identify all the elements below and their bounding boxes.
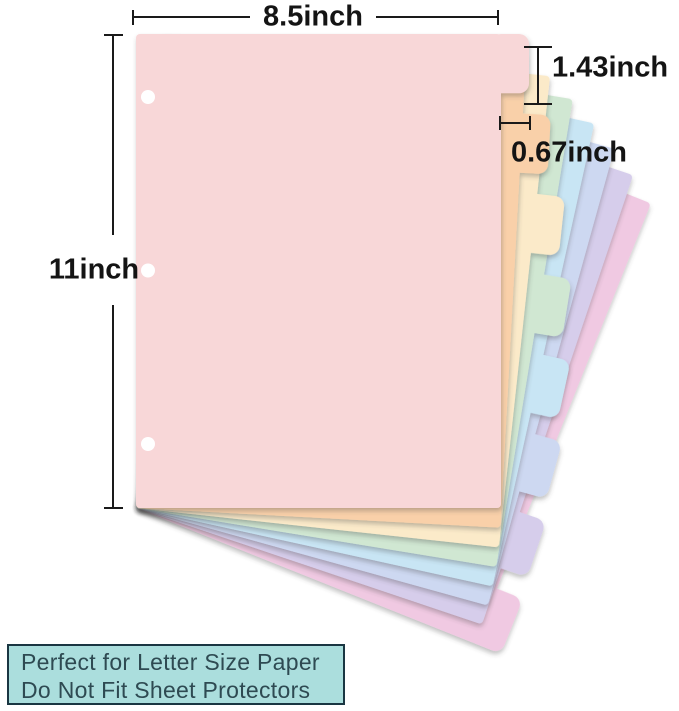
punch-hole	[141, 90, 155, 104]
info-box-line2: Do Not Fit Sheet Protectors	[21, 676, 343, 704]
info-box: Perfect for Letter Size Paper Do Not Fit…	[7, 644, 345, 705]
divider-sheet-stack	[136, 34, 677, 654]
sheet-body	[136, 34, 501, 508]
product-diagram: 8.5inch 11inch 1.43inch 0.67inch Perfect…	[0, 0, 679, 711]
punch-hole	[141, 264, 155, 278]
divider-sheet-pink	[136, 34, 529, 508]
sheet-tab	[491, 34, 529, 93]
diagram-canvas	[0, 0, 679, 711]
width-dimension-label: 8.5inch	[263, 3, 363, 32]
punch-hole	[141, 437, 155, 451]
info-box-line1: Perfect for Letter Size Paper	[21, 648, 343, 676]
tab-height-dimension-label: 1.43inch	[552, 54, 668, 83]
sheet-tab	[521, 193, 565, 256]
height-dimension-label: 11inch	[49, 256, 139, 285]
tab-width-dimension-label: 0.67inch	[511, 139, 627, 168]
